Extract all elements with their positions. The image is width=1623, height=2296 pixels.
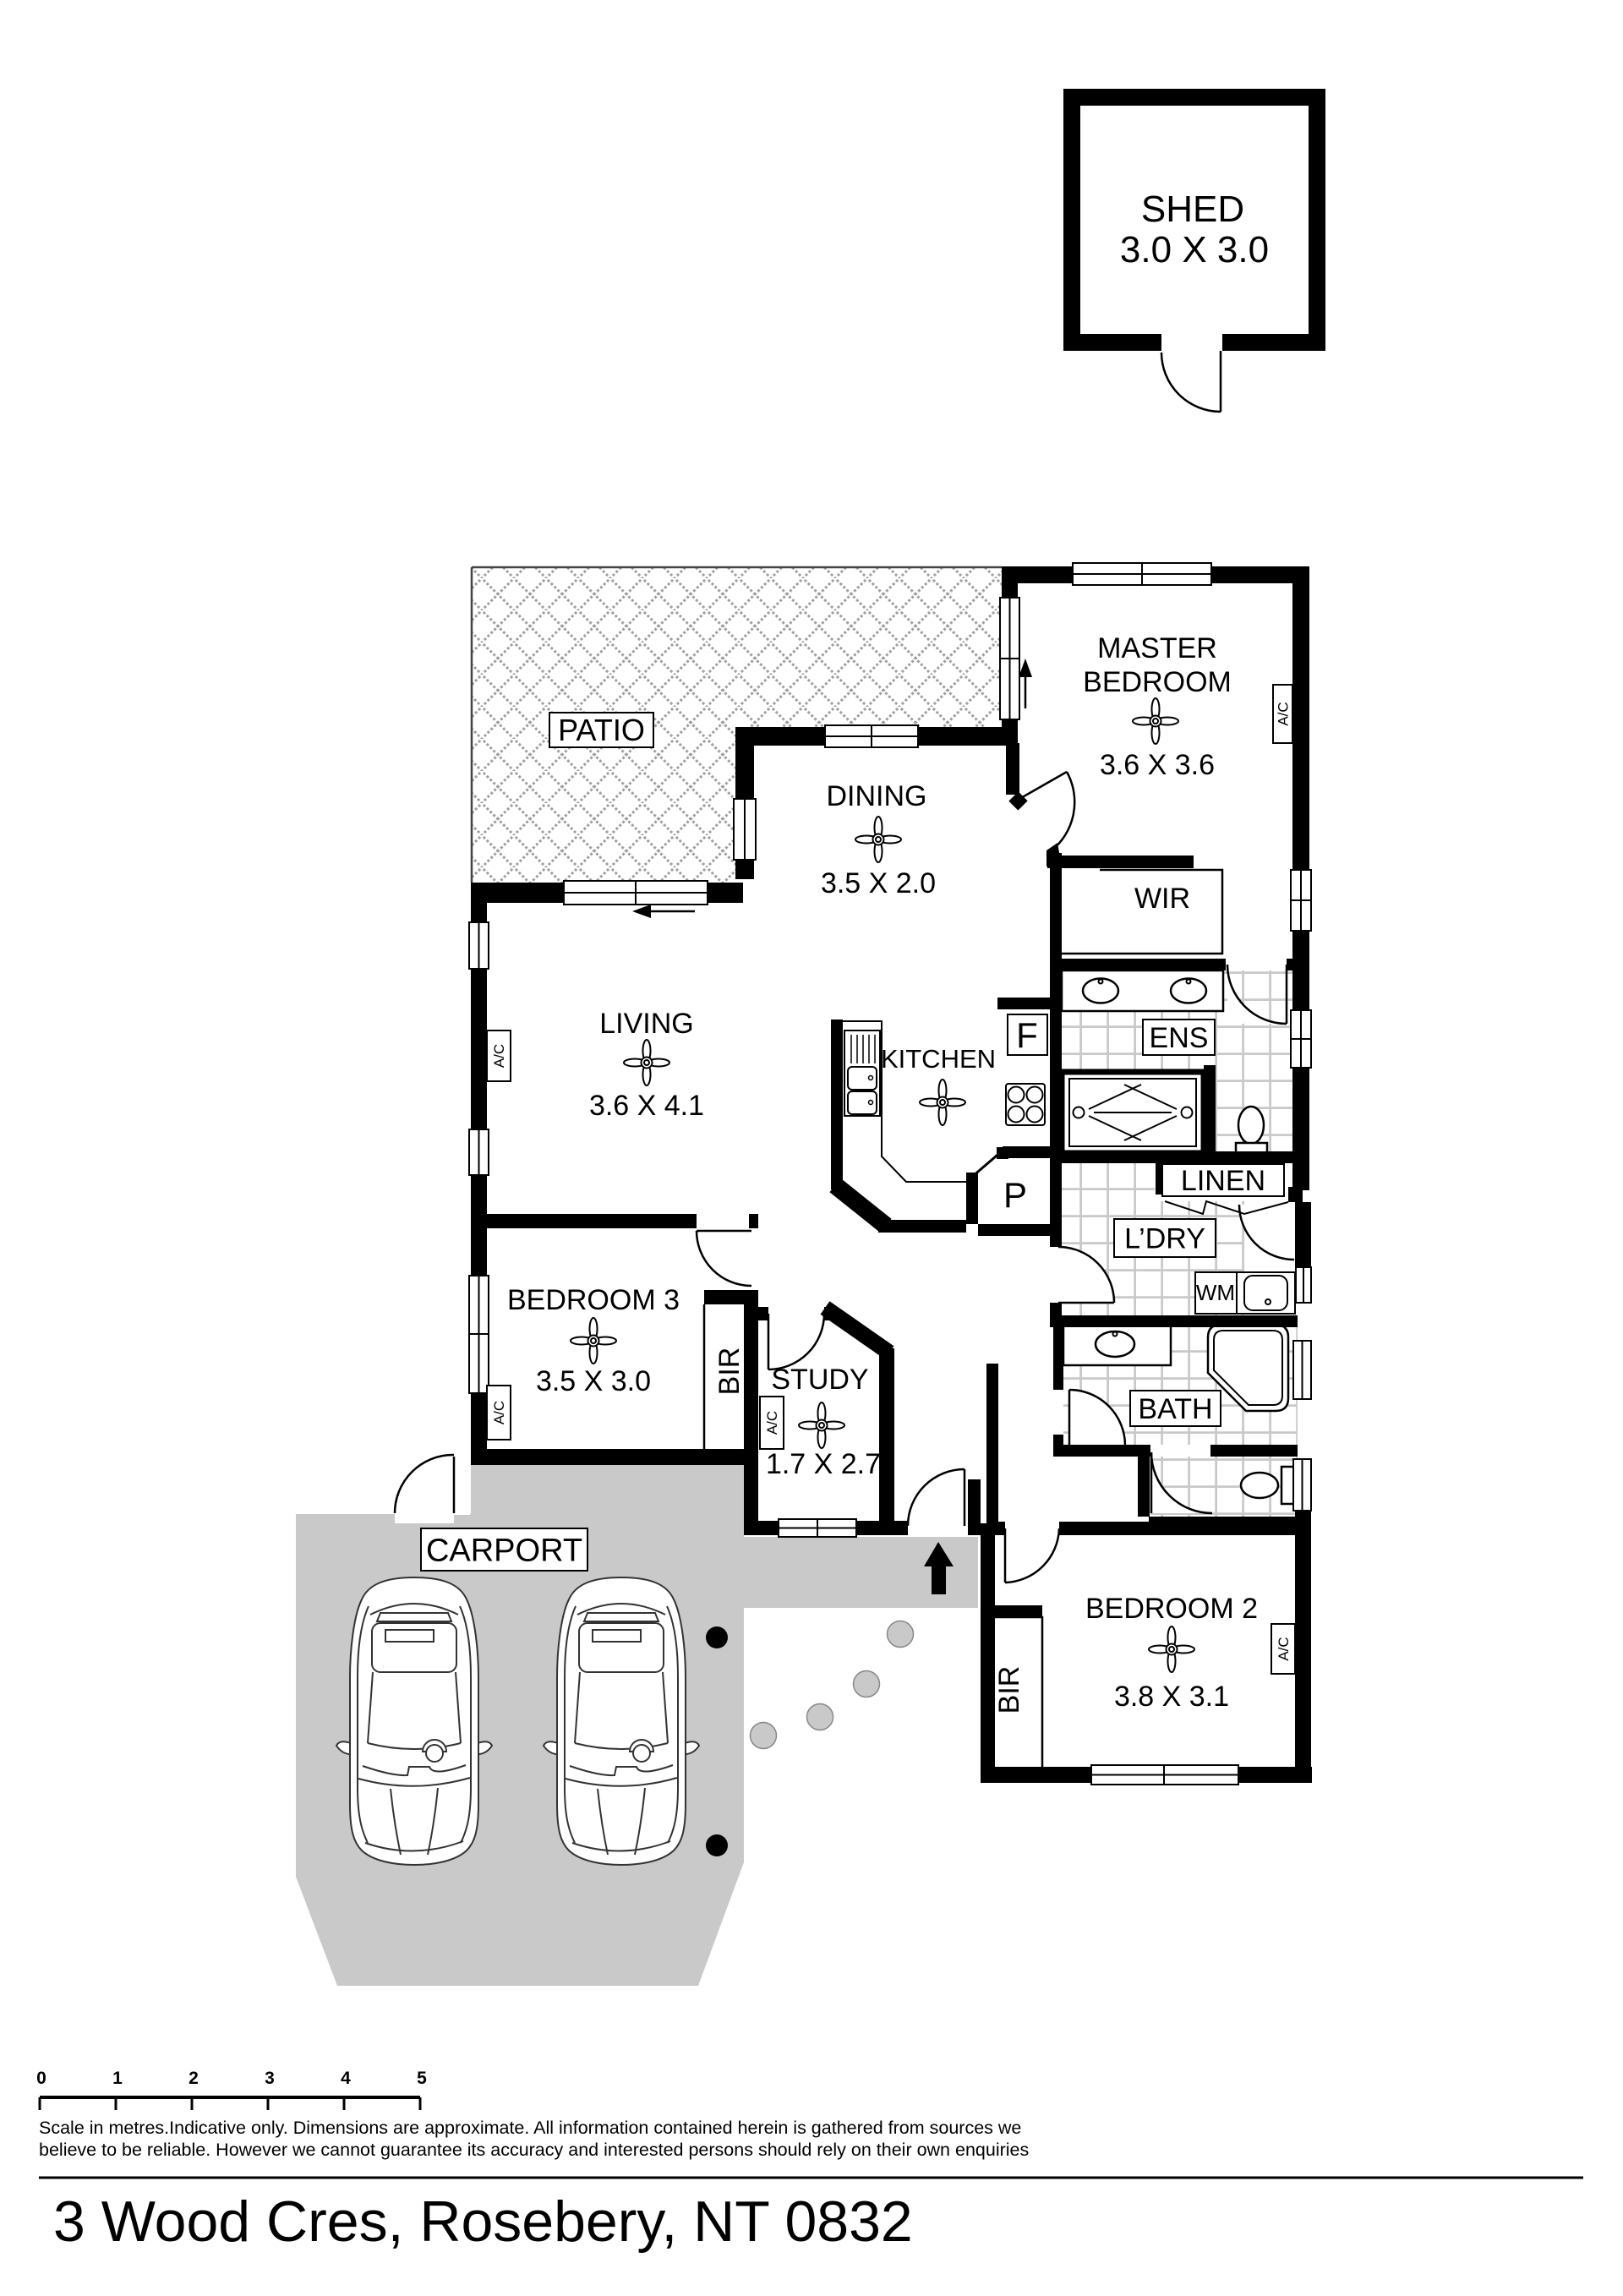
svg-text:3.5 X 3.0: 3.5 X 3.0: [536, 1365, 651, 1397]
svg-text:L’DRY: L’DRY: [1124, 1222, 1205, 1255]
svg-text:3.8 X 3.1: 3.8 X 3.1: [1114, 1681, 1229, 1713]
svg-text:1.7 X 2.7: 1.7 X 2.7: [766, 1448, 881, 1480]
svg-text:BATH: BATH: [1138, 1393, 1212, 1425]
svg-text:A/C: A/C: [1276, 1637, 1292, 1660]
svg-text:3.5 X 2.0: 3.5 X 2.0: [821, 867, 936, 899]
svg-text:LINEN: LINEN: [1181, 1165, 1265, 1197]
svg-text:BIR: BIR: [713, 1348, 746, 1396]
svg-text:SHED: SHED: [1141, 189, 1244, 230]
svg-text:Scale in metres.Indicative onl: Scale in metres.Indicative only. Dimensi…: [39, 2118, 1021, 2138]
svg-text:BEDROOM 2: BEDROOM 2: [1085, 1593, 1258, 1625]
svg-text:A/C: A/C: [764, 1411, 780, 1435]
svg-text:2: 2: [189, 2069, 199, 2088]
svg-text:ENS: ENS: [1150, 1022, 1209, 1054]
svg-text:MASTER: MASTER: [1097, 632, 1217, 664]
svg-text:A/C: A/C: [491, 1044, 507, 1068]
svg-text:KITCHEN: KITCHEN: [881, 1044, 996, 1074]
svg-text:3.0 X 3.0: 3.0 X 3.0: [1120, 229, 1269, 271]
svg-text:PATIO: PATIO: [558, 713, 645, 747]
svg-text:A/C: A/C: [491, 1401, 507, 1424]
svg-text:DINING: DINING: [827, 780, 927, 812]
svg-text:WM: WM: [1196, 1280, 1235, 1305]
svg-text:WIR: WIR: [1134, 883, 1190, 915]
svg-text:BEDROOM 3: BEDROOM 3: [507, 1284, 680, 1316]
svg-text:A/C: A/C: [1276, 702, 1292, 725]
svg-text:0: 0: [36, 2069, 46, 2088]
svg-text:3.6 X 3.6: 3.6 X 3.6: [1100, 749, 1215, 781]
svg-text:3: 3: [265, 2069, 275, 2088]
svg-text:STUDY: STUDY: [771, 1364, 868, 1396]
svg-text:F: F: [1016, 1015, 1038, 1055]
svg-text:3.6 X 4.1: 3.6 X 4.1: [589, 1090, 704, 1122]
svg-text:3 Wood Cres, Rosebery, NT 0832: 3 Wood Cres, Rosebery, NT 0832: [53, 2189, 913, 2254]
svg-text:P: P: [1003, 1175, 1027, 1215]
svg-text:BEDROOM: BEDROOM: [1083, 666, 1232, 698]
svg-text:LIVING: LIVING: [599, 1008, 693, 1040]
svg-text:5: 5: [417, 2069, 427, 2088]
svg-text:1: 1: [112, 2069, 123, 2088]
svg-text:CARPORT: CARPORT: [426, 1533, 582, 1568]
svg-text:4: 4: [341, 2069, 351, 2088]
svg-text:believe to be reliable. Howeve: believe to be reliable. However we canno…: [39, 2140, 1029, 2160]
svg-text:BIR: BIR: [993, 1666, 1025, 1714]
